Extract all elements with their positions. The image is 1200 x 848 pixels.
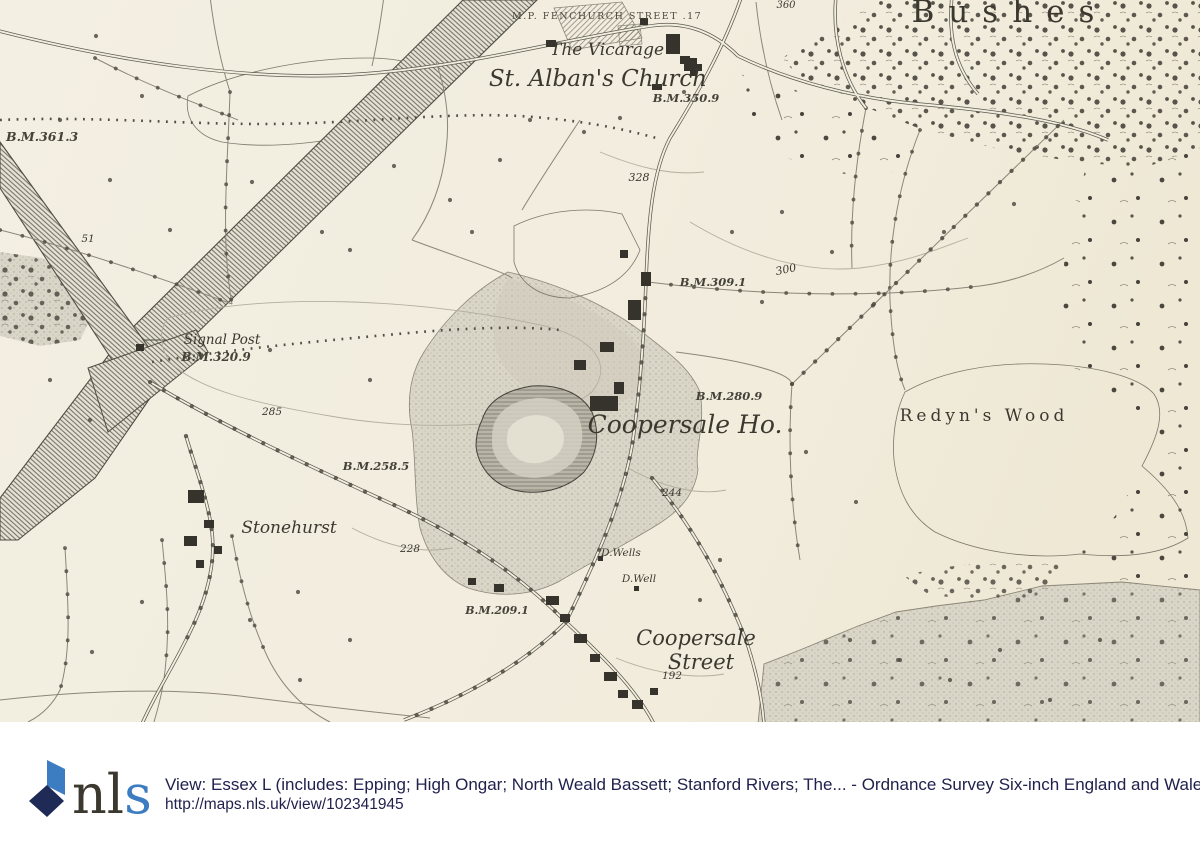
label-bm-361-3: B.M.361.3	[5, 129, 79, 144]
footer-text-block: View: Essex L (includes: Epping; High On…	[165, 774, 1200, 814]
label-51: 51	[81, 233, 94, 245]
label-360: 360	[776, 0, 796, 11]
label-redyns-wood: Redyn's Wood	[900, 406, 1069, 426]
nls-logo-text: nls	[72, 763, 152, 826]
historic-os-map: M.P. FENCHURCH STREET .17 The Vicarage S…	[0, 0, 1200, 722]
label-bushes: Bushes	[912, 0, 1109, 30]
label-bm-350-9: B.M.350.9	[652, 91, 719, 105]
label-coopersale-ho: Coopersale Ho.	[588, 410, 783, 439]
nls-logo[interactable]: nls	[26, 750, 166, 828]
label-228: 228	[399, 543, 420, 555]
label-d-wells: D.Wells	[600, 547, 641, 559]
label-bm-280-9: B.M.280.9	[695, 389, 762, 403]
label-coopersale-street-1: Coopersale	[636, 626, 756, 650]
label-192: 192	[662, 670, 682, 682]
label-244: 244	[661, 487, 682, 499]
label-fenchurch-railway: M.P. FENCHURCH STREET .17	[512, 11, 702, 22]
pond-core	[507, 415, 564, 463]
footer-bar: nls View: Essex L (includes: Epping; Hig…	[0, 722, 1200, 848]
label-285: 285	[261, 406, 282, 418]
label-st-albans-church: St. Alban's Church	[489, 66, 707, 92]
label-d-well: D.Well	[621, 573, 656, 585]
label-bm-209-1: B.M.209.1	[464, 604, 529, 617]
map-viewport[interactable]: M.P. FENCHURCH STREET .17 The Vicarage S…	[0, 0, 1200, 722]
label-signal-post: Signal Post	[184, 332, 261, 348]
footer-url: http://maps.nls.uk/view/102341945	[165, 795, 1200, 814]
label-the-vicarage: The Vicarage	[550, 40, 664, 60]
label-bm-320-9: B.M.320.9	[180, 350, 251, 364]
label-bm-309-1: B.M.309.1	[679, 275, 746, 289]
label-stonehurst: Stonehurst	[241, 518, 336, 538]
label-bm-258-5: B.M.258.5	[342, 459, 409, 473]
label-328: 328	[629, 171, 650, 184]
pond	[476, 386, 597, 493]
footer-view-title: View: Essex L (includes: Epping; High On…	[165, 774, 1200, 795]
